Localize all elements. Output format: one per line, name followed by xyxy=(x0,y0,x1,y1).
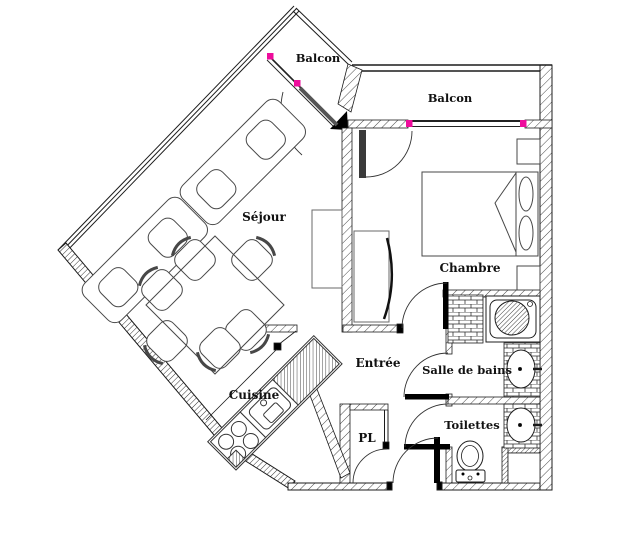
wall-balcony-left-slant xyxy=(338,64,362,112)
basin-drain xyxy=(519,368,522,371)
chambre-door-arc xyxy=(402,283,447,328)
label-entree: Entrée xyxy=(355,356,400,370)
glass-door-leaf xyxy=(300,88,337,125)
niche xyxy=(508,453,540,483)
wall-sejour-chambre xyxy=(342,128,352,332)
front-door-leaf xyxy=(434,437,440,483)
balcony-chambre-door-leaf xyxy=(359,130,366,178)
nightstand xyxy=(517,139,540,164)
wall-balcony-chambre-right xyxy=(525,120,552,128)
balcony-chambre-door-arc xyxy=(366,131,412,177)
label-pl: PL xyxy=(358,431,376,445)
label-cuisine: Cuisine xyxy=(229,388,280,402)
wall-sdb-toilettes xyxy=(448,397,540,404)
room-toilettes xyxy=(456,404,542,483)
wardrobe-door xyxy=(384,238,392,319)
floor-plan-svg: Balcon Balcon Séjour Chambre Entrée Sall… xyxy=(0,0,640,534)
wall-bottom-left-seg xyxy=(288,483,392,490)
wall-balcony-chambre-left xyxy=(348,120,408,128)
wall-entree-north xyxy=(343,325,403,332)
sideboard xyxy=(312,210,342,288)
divider-post xyxy=(274,343,281,350)
floor-plan: Balcon Balcon Séjour Chambre Entrée Sall… xyxy=(0,0,640,534)
wall-bottom-right-seg xyxy=(442,483,552,490)
room-sdb xyxy=(486,296,542,397)
label-chambre: Chambre xyxy=(439,261,500,275)
window-marker xyxy=(267,53,274,60)
wall-brick-block xyxy=(448,295,483,343)
label-salle-de-bains: Salle de bains xyxy=(422,363,512,377)
window-marker xyxy=(406,120,413,127)
label-balcon-top: Balcon xyxy=(428,91,473,105)
toilettes-door-arc xyxy=(405,404,448,447)
front-door-jamb-left xyxy=(387,482,392,490)
pl-door-arc xyxy=(353,449,387,483)
label-balcon-diagonal: Balcon xyxy=(296,51,341,65)
wall-pl-top xyxy=(350,404,388,410)
wardrobe xyxy=(354,231,389,322)
pillow xyxy=(519,177,533,211)
wall-entree-toilettes-low xyxy=(446,447,452,483)
pillow xyxy=(519,216,533,250)
bench xyxy=(176,95,310,229)
window-marker xyxy=(520,120,527,127)
chair xyxy=(228,232,280,284)
chambre-door-leaf xyxy=(443,282,449,329)
shower-floor xyxy=(495,301,529,335)
window-marker xyxy=(294,80,301,87)
sdb-door-leaf xyxy=(405,394,449,400)
basin-drain xyxy=(519,424,522,427)
nightstand xyxy=(517,266,540,290)
niche-wall-left xyxy=(502,447,508,483)
front-door-jamb-right xyxy=(437,482,442,490)
pl-door-post xyxy=(383,442,389,449)
label-toilettes: Toilettes xyxy=(444,418,499,432)
chair xyxy=(139,317,191,369)
label-sejour: Séjour xyxy=(242,210,286,224)
divider-sejour-cuisine xyxy=(265,325,297,332)
blanket-fold xyxy=(495,173,516,252)
room-sejour xyxy=(78,95,342,376)
